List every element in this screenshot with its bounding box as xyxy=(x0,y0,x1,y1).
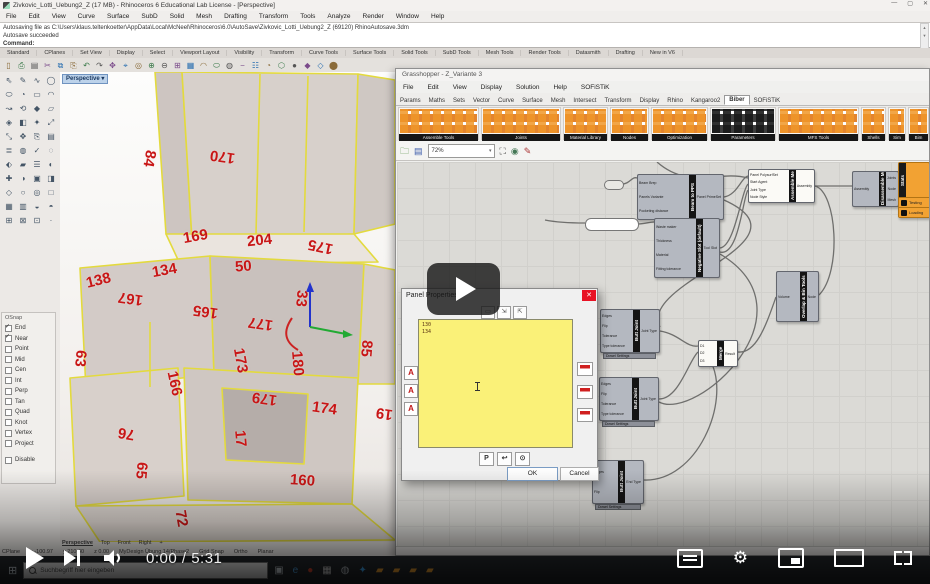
tool-icon[interactable]: ⤢ xyxy=(44,116,58,130)
cancel-button[interactable]: Cancel xyxy=(560,467,599,481)
settings-gear-icon[interactable]: ⚙ xyxy=(733,548,748,568)
tool-icon[interactable]: ≣ xyxy=(2,144,16,158)
tool-icon[interactable]: ⟲ xyxy=(16,102,30,116)
toolbar-icon[interactable]: ▦ xyxy=(185,60,196,71)
video-controls: 0:00 / 5:31 ⚙ xyxy=(0,538,930,578)
dimension-label: 85 xyxy=(357,339,375,357)
command-scrollbar[interactable]: ▲▼ xyxy=(920,23,929,49)
grasshopper-category-tabs: ParamsMathsSetsVectorCurveSurfaceMeshInt… xyxy=(396,93,929,106)
dimension-label: 180 xyxy=(288,350,307,376)
toolbar-tab[interactable]: Standard xyxy=(0,50,37,56)
ribbon-group[interactable]: MFS Tools xyxy=(778,107,859,140)
ribbon-group[interactable]: Joints xyxy=(481,107,561,140)
osnap-checkbox[interactable]: Vertex xyxy=(5,428,52,439)
toolbar-tab[interactable]: Set View xyxy=(73,50,110,56)
toolbar-tab[interactable]: Solid Tools xyxy=(394,50,436,56)
category-tab[interactable]: Transform xyxy=(600,97,635,105)
osnap-checkbox[interactable]: Near xyxy=(5,334,52,345)
component-icons[interactable] xyxy=(400,109,477,133)
toolbar-tab[interactable]: Transform xyxy=(262,50,302,56)
osnap-title: OSnap xyxy=(5,315,52,321)
toolbar-tab[interactable]: Select xyxy=(143,50,173,56)
grasshopper-menu-item[interactable]: SOFiSTiK xyxy=(574,84,617,91)
gh-component-butt-joint[interactable]: Edges Flip Tolerance Type tolerance Butt… xyxy=(600,309,660,353)
toolbar-icon[interactable]: ⊕ xyxy=(146,60,157,71)
dimension-label: 63 xyxy=(71,349,89,367)
toolbar-tab[interactable]: Render Tools xyxy=(521,50,568,56)
stream-filter-icon[interactable] xyxy=(577,362,593,376)
component-icons[interactable] xyxy=(863,109,884,133)
tool-icon[interactable]: ◐ xyxy=(44,158,58,172)
checkbox-icon xyxy=(5,377,12,384)
tool-icon[interactable]: ◌ xyxy=(44,144,58,158)
checkbox-icon xyxy=(5,335,12,342)
category-tab[interactable]: Kangaroo2 xyxy=(687,97,724,105)
osnap-checkbox[interactable]: Cen xyxy=(5,365,52,376)
checkbox-icon xyxy=(5,430,12,437)
tool-icon[interactable]: ▦ xyxy=(2,200,16,214)
sketch-pencil-icon[interactable]: ✎ xyxy=(524,145,532,157)
tool-icon[interactable]: ▭ xyxy=(30,88,44,102)
tool-icon[interactable]: ▥ xyxy=(16,200,30,214)
tool-icon[interactable]: ◓ xyxy=(44,200,58,214)
toolbar-icon[interactable]: ↷ xyxy=(94,60,105,71)
tool-icon[interactable]: ✚ xyxy=(2,172,16,186)
checkbox-icon xyxy=(5,356,12,363)
toolbar-icon[interactable]: ⌖ xyxy=(120,60,131,71)
tool-icon[interactable]: ⤡ xyxy=(2,130,16,144)
category-tab[interactable]: Curve xyxy=(494,97,518,105)
zoom-extents-icon[interactable]: ⛶ xyxy=(500,145,506,157)
rhino-menu-item[interactable]: SubD xyxy=(135,13,163,20)
osnap-checkbox[interactable]: Tan xyxy=(5,397,52,408)
tool-icon[interactable]: ◔ xyxy=(16,88,30,102)
ribbon-group[interactable]: Bim xyxy=(908,107,929,140)
grasshopper-menu-item[interactable]: Solution xyxy=(509,84,547,91)
tool-icon[interactable]: ⎘ xyxy=(30,130,44,144)
component-icons[interactable] xyxy=(653,109,706,133)
tool-icon[interactable]: ◨ xyxy=(44,172,58,186)
component-icons[interactable] xyxy=(483,109,559,133)
grasshopper-title-bar: Grasshopper - Z_Variante 3 xyxy=(396,69,929,81)
dimension-label: 84 xyxy=(140,149,160,168)
gh-component-assemble-me[interactable]: Panel PolysurfSet Start Agent Joint Type… xyxy=(748,169,815,203)
preview-eye-icon[interactable]: ◉ xyxy=(511,145,519,157)
maximize-icon[interactable]: ▢ xyxy=(907,0,913,7)
osnap-disable-checkbox[interactable]: Disable xyxy=(5,455,52,466)
theater-mode-button[interactable] xyxy=(834,549,864,567)
dimension-label: 72 xyxy=(172,509,192,528)
toolbar-icon[interactable]: ▯ xyxy=(3,60,14,71)
tool-icon[interactable]: ▰ xyxy=(16,158,30,172)
big-play-button[interactable] xyxy=(427,263,500,315)
category-tab[interactable]: Maths xyxy=(425,97,449,105)
toolbar-icon[interactable]: ▤ xyxy=(29,60,40,71)
checkbox-icon xyxy=(5,457,12,464)
checkbox-icon xyxy=(5,346,12,353)
rhino-menu-item[interactable]: Tools xyxy=(294,13,321,20)
checkbox-icon xyxy=(5,419,12,426)
toolbar-icon[interactable]: ⎙ xyxy=(16,60,27,71)
rhino-menu-item[interactable]: Solid xyxy=(164,13,190,20)
tool-icon[interactable]: ◆ xyxy=(30,102,44,116)
toolbar-tab[interactable]: Drafting xyxy=(609,50,643,56)
osnap-checkbox[interactable]: Knot xyxy=(5,418,52,429)
checkbox-icon xyxy=(5,388,12,395)
category-tab[interactable]: Params xyxy=(396,97,425,105)
special-codes-button[interactable]: ⊙ xyxy=(515,452,530,466)
toolbar-tab[interactable]: Visibility xyxy=(227,50,262,56)
category-tab[interactable]: Biber xyxy=(724,95,749,105)
toolbar-icon[interactable]: ⬭ xyxy=(211,60,222,71)
grasshopper-menu-item[interactable]: View xyxy=(446,84,474,91)
dimension-label: 179 xyxy=(251,388,278,408)
component-icons[interactable] xyxy=(780,109,857,133)
wrap-button[interactable]: ↩ xyxy=(497,452,512,466)
perspective-viewport[interactable]: Perspective ▾ xyxy=(60,72,395,542)
component-icons[interactable] xyxy=(890,109,904,133)
toolbar-icon[interactable]: − xyxy=(237,60,248,71)
command-history[interactable]: Autosaving file as C:\Users\klaus.telten… xyxy=(0,22,930,48)
rhino-menu-item[interactable]: Window xyxy=(390,13,425,20)
toolbar-icon[interactable]: ⊞ xyxy=(172,60,183,71)
panel-text-line: 134 xyxy=(422,329,569,336)
dimension-label: 17 xyxy=(231,429,249,447)
category-tab[interactable]: Vector xyxy=(469,97,494,105)
dimension-label: 165 xyxy=(192,301,219,321)
rhino-menu-item[interactable]: Transform xyxy=(253,13,294,20)
component-icons[interactable] xyxy=(712,109,774,133)
rhino-app-icon xyxy=(3,2,10,9)
rhino-title-bar: Zivkovic_Lotti_Uebung2_Z (17 MB) - Rhino… xyxy=(0,0,930,11)
component-icons[interactable] xyxy=(910,109,927,133)
tool-icon[interactable]: ⬭ xyxy=(2,88,16,102)
tool-icon[interactable]: ▤ xyxy=(44,130,58,144)
ok-button[interactable]: OK xyxy=(507,467,558,481)
toolbar-tab[interactable]: Mesh Tools xyxy=(479,50,522,56)
toolbar-icon[interactable]: ◇ xyxy=(315,60,326,71)
value-capsule[interactable] xyxy=(585,218,639,231)
tool-icon[interactable]: ◎ xyxy=(30,186,44,200)
checkbox-icon xyxy=(5,367,12,374)
toolbar-tab[interactable]: Curve Tools xyxy=(302,50,346,56)
font-button[interactable]: A xyxy=(404,366,418,380)
gh-component-disassemble-me[interactable]: Assembly Disassemble Me Joints Node Mesh xyxy=(852,171,899,207)
toolbar-icon[interactable]: ⬤ xyxy=(328,60,339,71)
stream-filter-icon[interactable] xyxy=(577,408,593,422)
rhino-menu-item[interactable]: Surface xyxy=(101,13,135,20)
miniplayer-button[interactable] xyxy=(778,548,804,568)
component-icons[interactable] xyxy=(565,109,606,133)
dimension-label: 177 xyxy=(247,313,274,333)
rhino-menu-bar: FileEditViewCurveSurfaceSubDSolidMeshDra… xyxy=(0,11,930,22)
toolbar-tab[interactable]: SubD Tools xyxy=(436,50,479,56)
rhino-menu-item[interactable]: Drafting xyxy=(218,13,253,20)
category-tab[interactable]: SOFiSTiK xyxy=(750,97,784,105)
command-line: Autosave succeeded xyxy=(3,32,927,40)
tool-icon[interactable]: · xyxy=(44,214,58,228)
ribbon-group[interactable]: Sim xyxy=(888,107,906,140)
toolbar-icon[interactable]: ◆ xyxy=(302,60,313,71)
grasshopper-menu-item[interactable]: Edit xyxy=(420,84,445,91)
tool-icon[interactable]: ✥ xyxy=(16,130,30,144)
panel-properties-dialog: Panel Properties ✕ ▭ ⇲ ⇱ 130134 A A A P … xyxy=(401,288,598,481)
tool-icon[interactable]: ◒ xyxy=(30,200,44,214)
rhino-menu-item[interactable]: Render xyxy=(357,13,390,20)
toolbar-icon[interactable]: ● xyxy=(289,60,300,71)
osnap-checkbox[interactable]: Perp xyxy=(5,386,52,397)
toolbar-icon[interactable]: ◠ xyxy=(198,60,209,71)
tool-icon[interactable]: □ xyxy=(44,186,58,200)
toolbar-icon[interactable]: ⎘ xyxy=(68,60,79,71)
rhino-menu-item[interactable]: Mesh xyxy=(190,13,218,20)
category-tab[interactable]: Sets xyxy=(449,97,469,105)
ribbon-group[interactable]: Shells xyxy=(861,107,886,140)
dimension-label: 19 xyxy=(375,404,394,423)
tool-icon[interactable]: ○ xyxy=(16,186,30,200)
dimension-label: 170 xyxy=(209,146,236,166)
font-color-button[interactable]: A xyxy=(404,402,418,416)
tool-icon[interactable]: ⊞ xyxy=(2,214,16,228)
tool-icon[interactable]: ⊡ xyxy=(30,214,44,228)
rhino-menu-item[interactable]: Help xyxy=(425,13,450,20)
viewport-label[interactable]: Perspective ▾ xyxy=(62,74,108,84)
text-cursor xyxy=(477,382,478,391)
tool-icon[interactable]: ⬖ xyxy=(2,158,16,172)
component-icons[interactable] xyxy=(612,109,647,133)
gh-component-stats[interactable]: Stats Testing Loading xyxy=(898,162,929,218)
grasshopper-menu-bar: FileEditViewDisplaySolutionHelpSOFiSTiK xyxy=(396,81,929,93)
dimension-label: 33 xyxy=(292,289,310,307)
rhino-window-title: Zivkovic_Lotti_Uebung2_Z (17 MB) - Rhino… xyxy=(13,2,275,9)
tool-icon[interactable]: ◈ xyxy=(2,116,16,130)
osnap-checkbox[interactable]: Quad xyxy=(5,407,52,418)
ribbon-group[interactable]: Nodes xyxy=(610,107,649,140)
tool-icon[interactable]: ◠ xyxy=(44,88,58,102)
grasshopper-component-ribbon: Assemble Tools Joints Material Library N… xyxy=(396,106,929,141)
checkbox-icon xyxy=(5,409,12,416)
ribbon-group[interactable]: Parameters xyxy=(710,107,776,140)
rhino-menu-item[interactable]: View xyxy=(46,13,72,20)
tool-icon[interactable]: ✦ xyxy=(30,116,44,130)
youtube-video-frame: Zivkovic_Lotti_Uebung2_Z (17 MB) - Rhino… xyxy=(0,0,930,584)
toolbar-tab[interactable]: Datasmith xyxy=(569,50,609,56)
grasshopper-menu-item[interactable]: Display xyxy=(474,84,509,91)
tool-icon[interactable]: ◍ xyxy=(16,144,30,158)
rhino-sidebar-toolbox: ⇖✎∿◯⬭◔▭◠↝⟲◆▱◈◧✦⤢⤡✥⎘▤≣◍✓◌⬖▰☰◐✚◑▣◨◇○◎□▦▥◒◓… xyxy=(0,74,62,304)
toolbar-icon[interactable]: ◍ xyxy=(224,60,235,71)
close-icon[interactable]: ✕ xyxy=(582,290,596,301)
toolbar-tab[interactable]: CPlanes xyxy=(37,50,73,56)
toolbar-tab[interactable]: Viewport Layout xyxy=(173,50,227,56)
toolbar-icon[interactable]: ✥ xyxy=(107,60,118,71)
gh-component-merge[interactable]: D1 D2 D3 Merge Result xyxy=(698,340,738,367)
osnap-panel: OSnap End Near Point xyxy=(1,312,56,484)
dimension-label: 50 xyxy=(234,257,252,275)
canvas-toolbar: 🗀 ▤ 72% ⛶ ◉ ✎ xyxy=(396,141,929,161)
osnap-checkbox[interactable]: Project xyxy=(5,439,52,450)
gh-component-butt-joint[interactable]: Edges Flip Butt Joint End Type Dowel Set… xyxy=(592,460,644,504)
tool-icon[interactable]: ✎ xyxy=(16,74,30,88)
category-tab[interactable]: Surface xyxy=(518,97,547,105)
panel-text-area[interactable]: 130134 xyxy=(418,319,573,448)
ribbon-group[interactable]: Assemble Tools xyxy=(398,107,479,140)
rhino-menu-item[interactable]: Curve xyxy=(72,13,101,20)
tool-icon[interactable]: ◇ xyxy=(2,186,16,200)
ribbon-group[interactable]: Material Library xyxy=(563,107,608,140)
minimize-icon[interactable]: — xyxy=(891,0,897,7)
ribbon-group[interactable]: Optimization xyxy=(651,107,708,140)
gh-component-butt-joint[interactable]: Edges Flip Tolerance Type tolerance Butt… xyxy=(599,377,659,421)
dimension-label: 167 xyxy=(117,288,144,308)
checkbox-icon xyxy=(5,440,12,447)
toolbar-icon[interactable]: ☷ xyxy=(250,60,261,71)
font-size-button[interactable]: A xyxy=(404,384,418,398)
dimension-label: 204 xyxy=(246,231,273,251)
tool-icon[interactable]: ◧ xyxy=(16,116,30,130)
open-file-icon[interactable]: 🗀 xyxy=(400,145,409,157)
tool-icon[interactable]: ◯ xyxy=(44,74,58,88)
gh-component-beam-to-pps[interactable]: Beam Brep Panels Variante Pocketing dist… xyxy=(637,174,724,220)
category-tab[interactable]: Mesh xyxy=(547,97,570,105)
toolbar-icon[interactable]: ⊖ xyxy=(159,60,170,71)
paragraph-button[interactable]: P xyxy=(479,452,494,466)
toolbar-icon[interactable]: ✂ xyxy=(42,60,53,71)
subtitles-button[interactable] xyxy=(677,549,703,568)
speaker-icon xyxy=(102,548,124,568)
category-tab[interactable]: Rhino xyxy=(663,97,687,105)
command-line: Autosaving file as C:\Users\klaus.telten… xyxy=(3,24,927,32)
category-tab[interactable]: Display xyxy=(636,97,664,105)
tool-icon[interactable]: ⊠ xyxy=(16,214,30,228)
tool-icon[interactable]: ▱ xyxy=(44,102,58,116)
rhino-menu-item[interactable]: Analyze xyxy=(321,13,356,20)
tool-icon[interactable]: ↝ xyxy=(2,102,16,116)
dimension-label: 76 xyxy=(117,424,136,444)
checkbox-icon xyxy=(5,398,12,405)
osnap-checkbox[interactable]: Point xyxy=(5,344,52,355)
dimension-label: 65 xyxy=(132,461,150,479)
toolbar-icon[interactable]: ↶ xyxy=(81,60,92,71)
gh-component-overlap-bin-tools[interactable]: Volume Overlap & Bin Tools Node xyxy=(776,271,819,322)
volume-button[interactable] xyxy=(102,548,124,568)
toolbar-icon[interactable]: ◔ xyxy=(263,60,274,71)
save-file-icon[interactable]: ▤ xyxy=(414,145,423,157)
toolbar-tab[interactable]: Surface Tools xyxy=(346,50,394,56)
number-slider[interactable] xyxy=(604,180,624,190)
model-3d-wireframe xyxy=(60,72,395,542)
play-button[interactable] xyxy=(26,547,44,569)
stream-filter-icon[interactable] xyxy=(577,385,593,399)
osnap-checkbox[interactable]: Int xyxy=(5,376,52,387)
command-prompt[interactable]: Command: xyxy=(3,40,927,48)
tool-icon[interactable]: ◑ xyxy=(16,172,30,186)
tool-icon[interactable]: ⇖ xyxy=(2,74,16,88)
toolbar-tab[interactable]: New in V6 xyxy=(643,50,683,56)
gh-component-negative-slot[interactable]: Waste maker Thickness Material Fitting t… xyxy=(654,218,720,278)
tool-icon[interactable]: ✓ xyxy=(30,144,44,158)
rhino-menu-item[interactable]: Edit xyxy=(22,13,45,20)
osnap-checkbox[interactable]: Mid xyxy=(5,355,52,366)
rhino-menu-item[interactable]: File xyxy=(0,13,22,20)
tool-icon[interactable]: ☰ xyxy=(30,158,44,172)
tool-icon[interactable]: ∿ xyxy=(30,74,44,88)
toolbar-tab[interactable]: Display xyxy=(110,50,143,56)
grasshopper-menu-item[interactable]: File xyxy=(396,84,420,91)
align-icon[interactable]: ⇱ xyxy=(513,306,527,319)
dimension-label: 160 xyxy=(289,471,315,490)
rhino-toolbar-tabs: StandardCPlanesSet ViewDisplaySelectView… xyxy=(0,48,930,58)
play-icon xyxy=(456,277,476,301)
osnap-checkbox[interactable]: End xyxy=(5,323,52,334)
close-icon[interactable]: ✕ xyxy=(923,0,928,7)
checkbox-icon xyxy=(5,325,12,332)
next-button[interactable] xyxy=(64,550,80,566)
toolbar-icon[interactable]: ⧉ xyxy=(55,60,66,71)
time-display: 0:00 / 5:31 xyxy=(146,550,222,567)
tool-icon[interactable]: ▣ xyxy=(30,172,44,186)
toolbar-icon[interactable]: ◎ xyxy=(133,60,144,71)
dimension-label: 174 xyxy=(311,398,338,418)
zoom-select[interactable]: 72% xyxy=(428,144,495,158)
grasshopper-menu-item[interactable]: Help xyxy=(546,84,573,91)
toolbar-icon[interactable]: ⬡ xyxy=(276,60,287,71)
fullscreen-button[interactable] xyxy=(894,551,912,565)
category-tab[interactable]: Intersect xyxy=(569,97,600,105)
